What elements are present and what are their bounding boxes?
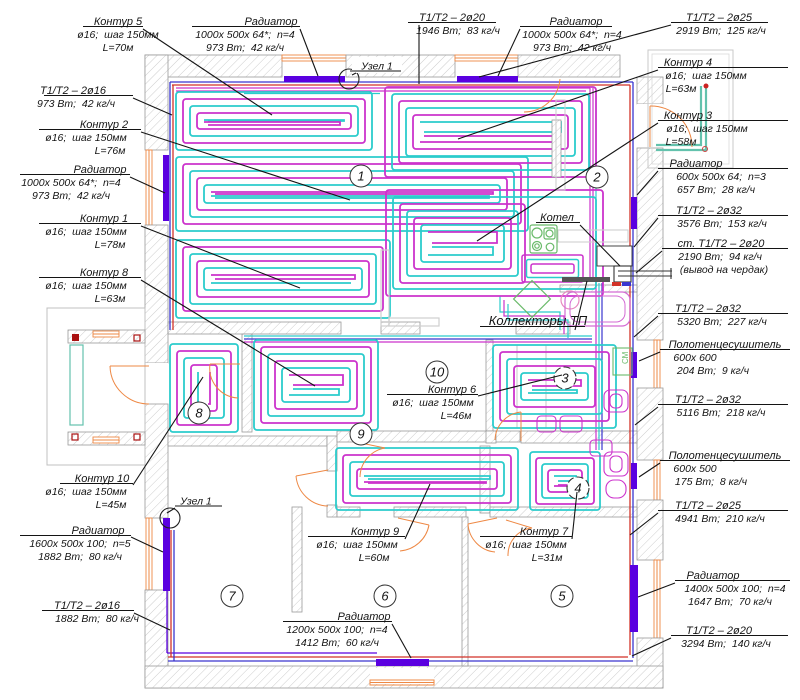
svg-text:L=70м: L=70м [103, 42, 134, 54]
svg-text:973 Вт; 42 кг/ч: 973 Вт; 42 кг/ч [206, 42, 285, 54]
svg-text:973 Вт; 42 кг/ч: 973 Вт; 42 кг/ч [32, 190, 111, 202]
svg-text:L=60м: L=60м [359, 552, 390, 564]
svg-text:1200х 500х 100; n=4: 1200х 500х 100; n=4 [286, 624, 387, 636]
svg-text:657 Вт; 28 кг/ч: 657 Вт; 28 кг/ч [677, 184, 756, 196]
svg-text:5116 Вт; 218 кг/ч: 5116 Вт; 218 кг/ч [677, 407, 766, 419]
svg-text:3294 Вт; 140 кг/ч: 3294 Вт; 140 кг/ч [681, 638, 771, 650]
svg-text:ø16; шаг 150мм: ø16; шаг 150мм [665, 70, 746, 82]
svg-text:2919 Вт; 125 кг/ч: 2919 Вт; 125 кг/ч [675, 25, 766, 37]
svg-text:1400х 500х 100; n=4: 1400х 500х 100; n=4 [684, 583, 785, 595]
svg-text:1946 Вт; 83 кг/ч: 1946 Вт; 83 кг/ч [416, 25, 500, 37]
svg-text:1000х 500х 64*; n=4: 1000х 500х 64*; n=4 [195, 29, 295, 41]
svg-text:600х 500: 600х 500 [673, 463, 716, 475]
svg-text:1000х 500х 64*; n=4: 1000х 500х 64*; n=4 [21, 177, 121, 189]
svg-text:L=78м: L=78м [95, 239, 126, 251]
svg-text:1882 Вт; 80 кг/ч: 1882 Вт; 80 кг/ч [55, 613, 139, 625]
svg-text:(вывод на чердак): (вывод на чердак) [680, 264, 768, 276]
svg-text:4941 Вт; 210 кг/ч: 4941 Вт; 210 кг/ч [675, 513, 765, 525]
svg-text:1412 Вт; 60 кг/ч: 1412 Вт; 60 кг/ч [295, 637, 379, 649]
svg-text:1000х 500х 64*; n=4: 1000х 500х 64*; n=4 [522, 29, 622, 41]
svg-text:5320 Вт; 227 кг/ч: 5320 Вт; 227 кг/ч [677, 316, 767, 328]
svg-text:204 Вт; 9 кг/ч: 204 Вт; 9 кг/ч [676, 365, 750, 377]
svg-text:ø16; шаг 150мм: ø16; шаг 150мм [45, 226, 126, 238]
svg-text:L=58м: L=58м [666, 136, 697, 148]
svg-text:L=63м: L=63м [95, 293, 126, 305]
svg-text:ø16; шаг 150мм: ø16; шаг 150мм [316, 539, 397, 551]
svg-text:3: 3 [561, 371, 569, 386]
svg-text:3576 Вт; 153 кг/ч: 3576 Вт; 153 кг/ч [677, 218, 767, 230]
svg-text:ø16; шаг 150мм: ø16; шаг 150мм [45, 280, 126, 292]
svg-text:ø16; шаг 150мм: ø16; шаг 150мм [666, 123, 747, 135]
svg-text:Коллекторы ТП: Коллекторы ТП [489, 313, 588, 328]
svg-text:5: 5 [558, 589, 566, 604]
svg-text:2: 2 [592, 170, 601, 185]
svg-text:ø16; шаг 150мм: ø16; шаг 150мм [392, 397, 473, 409]
svg-text:1882 Вт; 80 кг/ч: 1882 Вт; 80 кг/ч [38, 551, 122, 563]
svg-text:L=31м: L=31м [532, 552, 563, 564]
svg-text:L=63м: L=63м [666, 83, 697, 95]
svg-text:ø16; шаг 150мм: ø16; шаг 150мм [45, 486, 126, 498]
svg-text:ø16; шаг 150мм: ø16; шаг 150мм [45, 132, 126, 144]
svg-text:1: 1 [357, 169, 364, 184]
svg-text:L=45м: L=45м [96, 499, 127, 511]
svg-text:8: 8 [195, 406, 203, 421]
svg-text:600х 600: 600х 600 [673, 352, 716, 364]
svg-text:2190 Вт; 94 кг/ч: 2190 Вт; 94 кг/ч [677, 251, 762, 263]
svg-text:10: 10 [430, 365, 445, 380]
svg-text:1600х 500х 100; n=5: 1600х 500х 100; n=5 [29, 538, 130, 550]
svg-text:1647 Вт; 70 кг/ч: 1647 Вт; 70 кг/ч [688, 596, 772, 608]
svg-text:6: 6 [381, 589, 389, 604]
svg-text:600х 500х 64; n=3: 600х 500х 64; n=3 [676, 171, 766, 183]
svg-text:9: 9 [357, 427, 364, 442]
svg-text:175 Вт; 8 кг/ч: 175 Вт; 8 кг/ч [675, 476, 748, 488]
svg-text:СМ: СМ [621, 351, 630, 364]
svg-text:973 Вт; 42 кг/ч: 973 Вт; 42 кг/ч [37, 98, 116, 110]
svg-text:7: 7 [228, 589, 236, 604]
svg-text:L=46м: L=46м [441, 410, 472, 422]
svg-text:ø16; шаг 150мм: ø16; шаг 150мм [485, 539, 566, 551]
svg-text:4: 4 [574, 481, 581, 496]
svg-text:L=76м: L=76м [95, 145, 126, 157]
